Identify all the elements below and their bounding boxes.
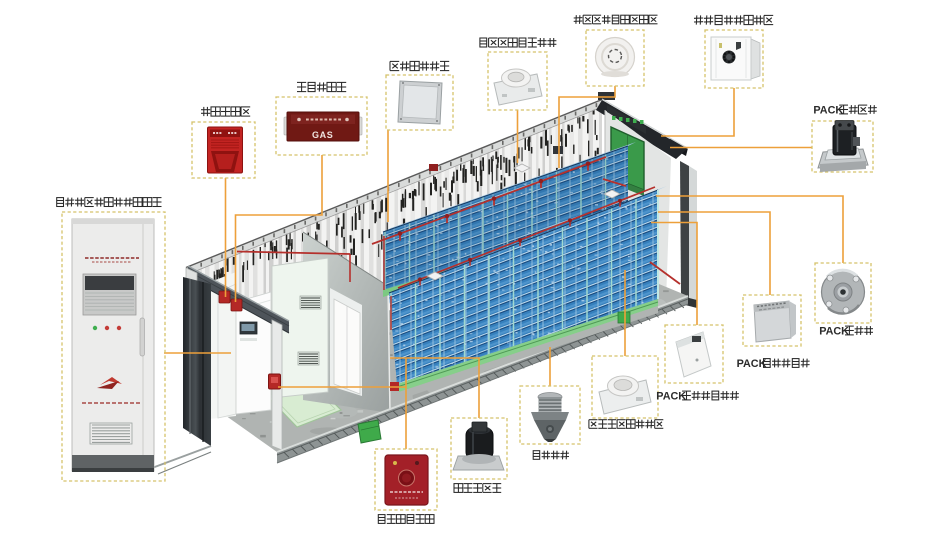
svg-text:PACK: PACK: [819, 325, 849, 337]
svg-text:PACK: PACK: [813, 104, 843, 116]
svg-text:GAS: GAS: [312, 130, 333, 140]
svg-text:PACK: PACK: [737, 358, 767, 370]
svg-text:PACK: PACK: [656, 390, 686, 402]
